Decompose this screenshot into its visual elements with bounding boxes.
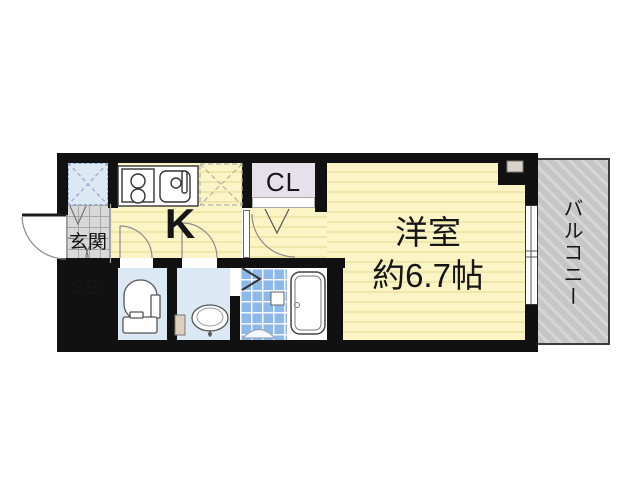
closet-threshold [252, 197, 315, 208]
toilet-door-opening [120, 258, 153, 268]
wall-segment [525, 153, 538, 205]
washroom-floor [177, 268, 230, 340]
western-room-label: 洋室 約6.7帖 [330, 211, 526, 297]
closet-label: CL [252, 167, 315, 198]
wall-segment [108, 153, 118, 208]
kitchen-label: K [148, 200, 212, 248]
shoe-box-label: SB [63, 277, 108, 300]
entrance-label: 玄関 [64, 227, 112, 254]
bathtub-area [287, 268, 327, 340]
floorplan: 玄関 SB K CL 洋室 約6.7帖 バルコニー [0, 0, 640, 480]
corridor-floor [250, 208, 327, 258]
wall-segment [57, 153, 538, 163]
toilet-floor [118, 268, 167, 340]
wall-segment [57, 153, 68, 215]
entrance-door-swing [22, 215, 66, 259]
western-room-name: 洋室 [330, 211, 526, 254]
western-room-size: 約6.7帖 [330, 254, 526, 297]
wall-segment [108, 258, 118, 340]
wall-segment [167, 268, 177, 340]
bathroom-door-opening [230, 268, 240, 296]
wall-segment [315, 160, 327, 212]
corridor-door-leaf [243, 210, 250, 258]
balcony-label: バルコニー [558, 191, 586, 315]
wall-segment [242, 163, 252, 208]
wall-segment [57, 258, 108, 352]
pipe-space [68, 163, 108, 205]
balcony-window [525, 205, 538, 305]
wall-segment [108, 340, 538, 352]
washroom-door-opening [182, 258, 217, 268]
wall-segment [525, 305, 538, 352]
